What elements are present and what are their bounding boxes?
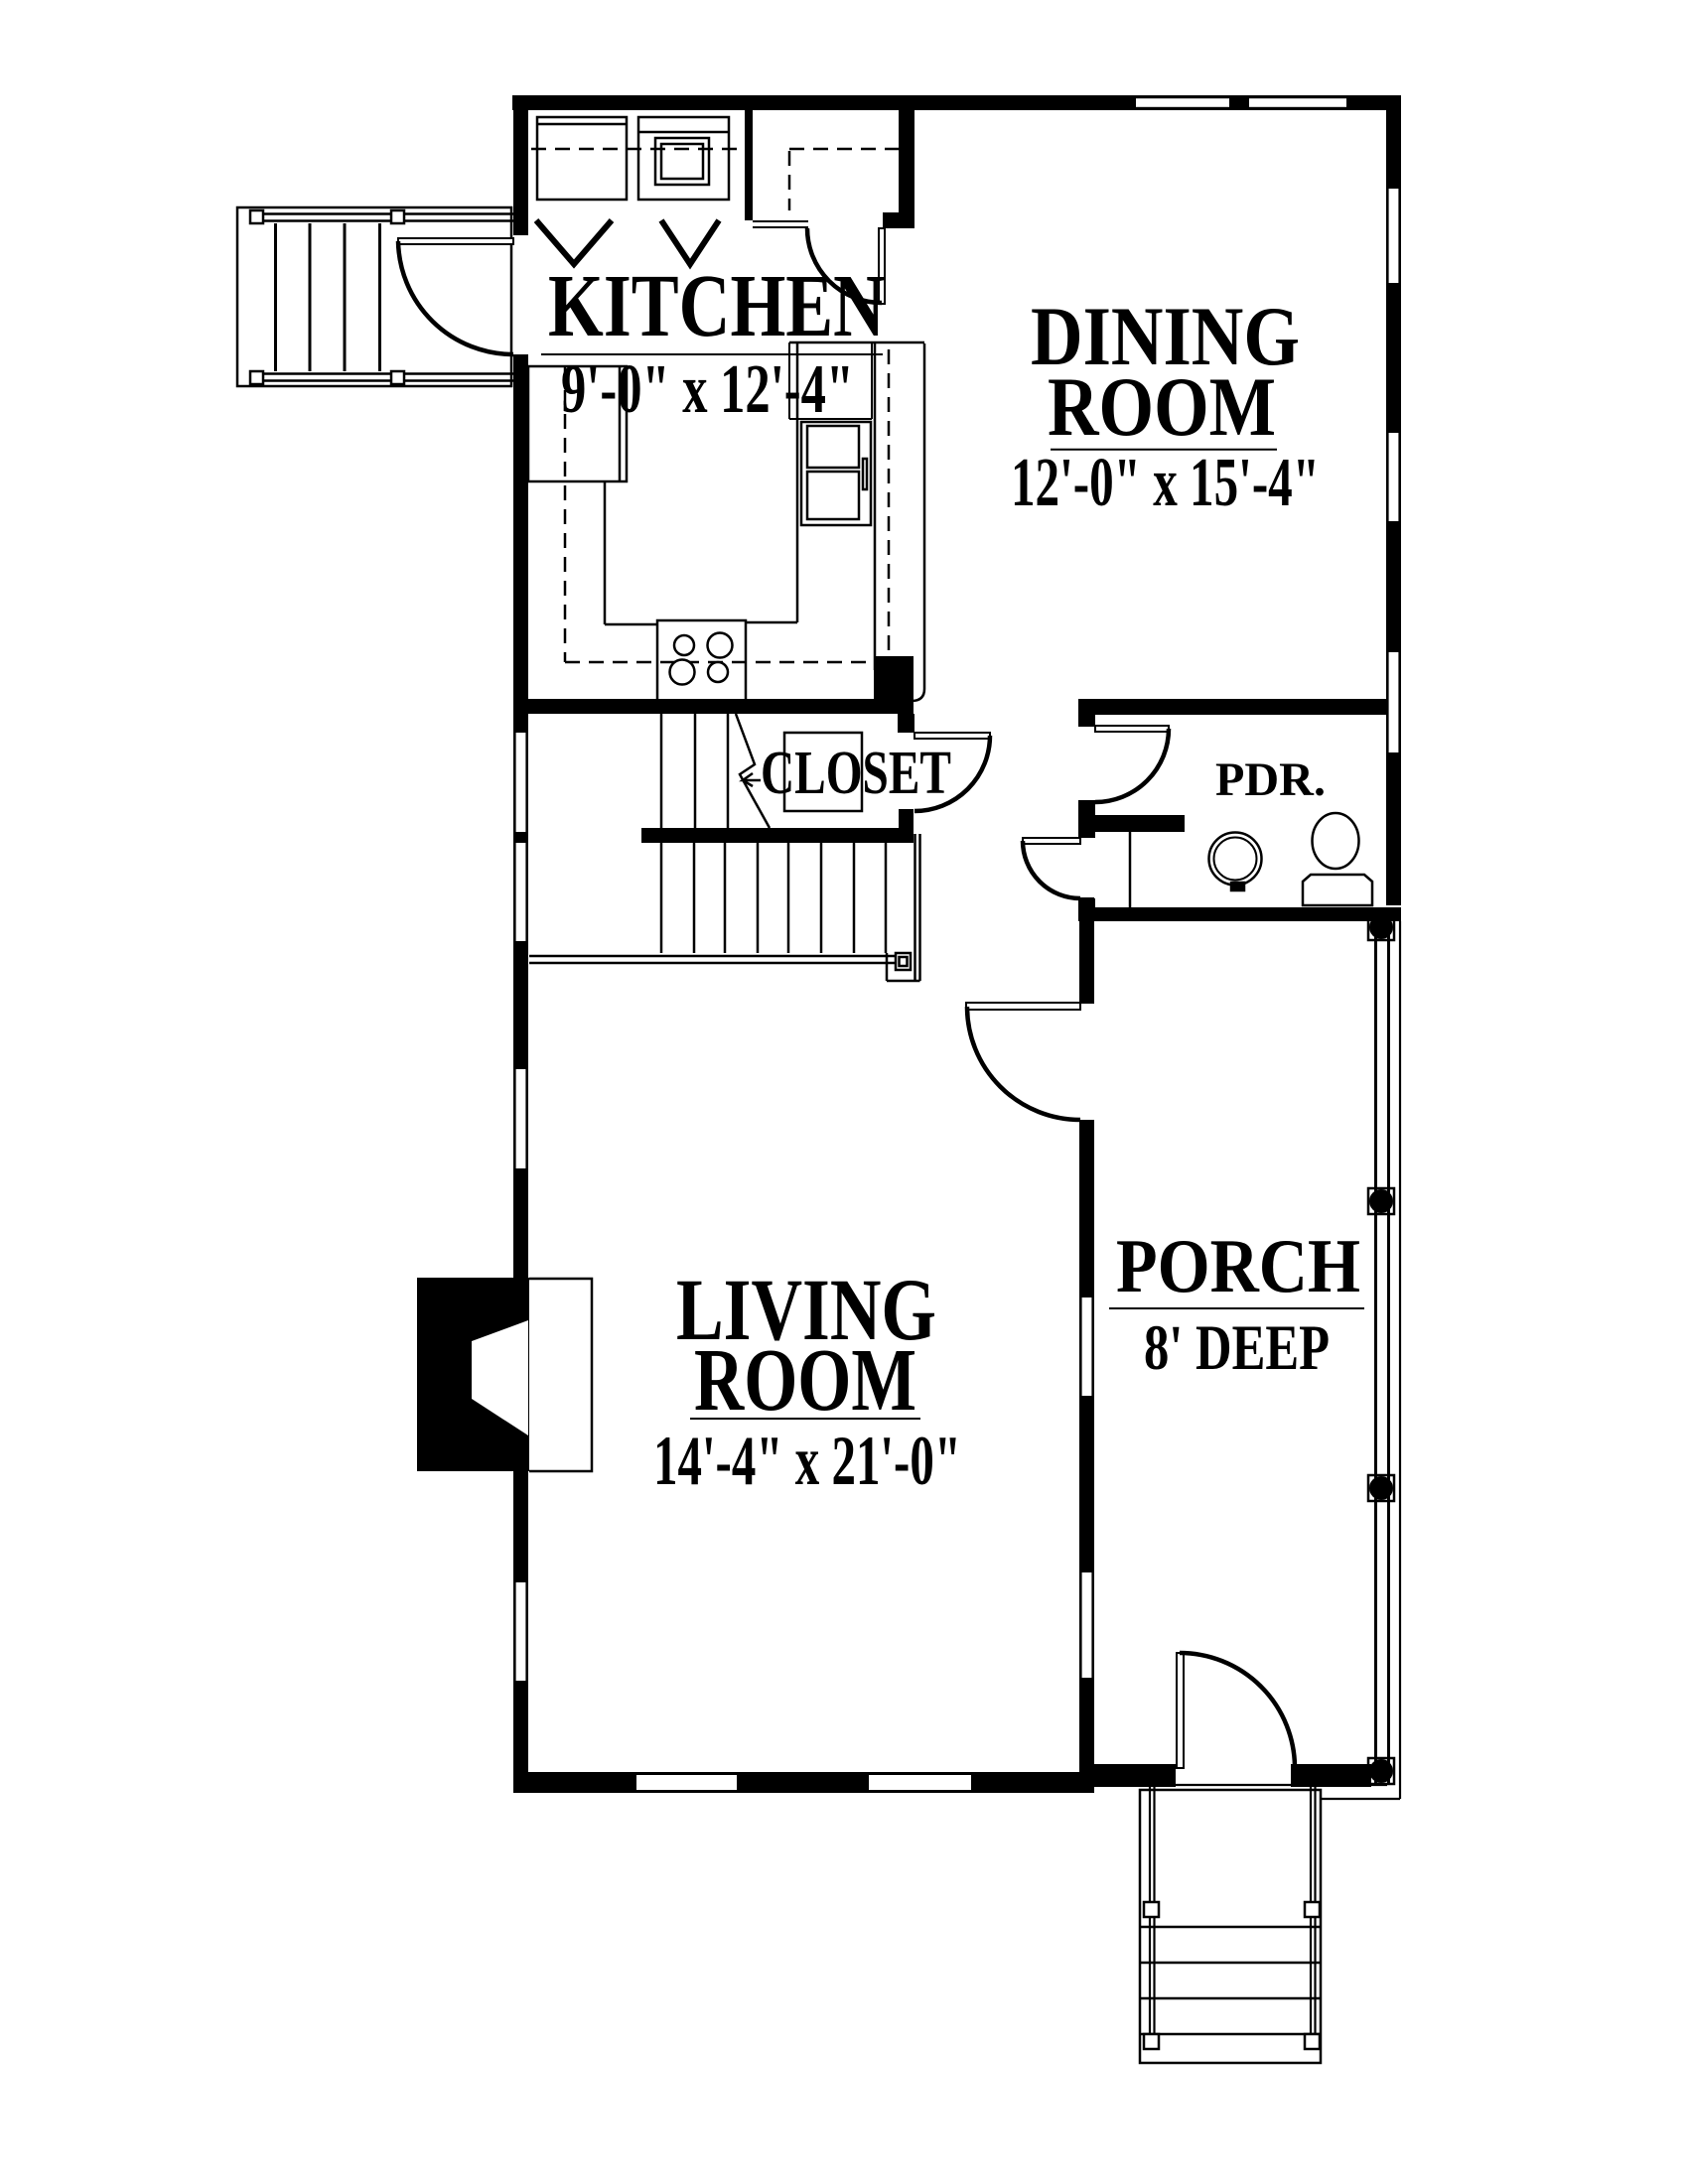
svg-text:8' DEEP: 8' DEEP [1144,1312,1330,1384]
svg-text:9'-0" x 12'-4": 9'-0" x 12'-4" [561,351,854,428]
svg-text:ROOM: ROOM [694,1331,916,1430]
svg-text:12'-0" x 15'-4": 12'-0" x 15'-4" [1011,445,1320,521]
svg-text:CLOSET: CLOSET [761,740,951,807]
svg-text:14'-4" x 21'-0": 14'-4" x 21'-0" [653,1423,961,1500]
svg-text:PDR.: PDR. [1215,753,1326,806]
svg-text:PORCH: PORCH [1116,1223,1360,1308]
svg-text:KITCHEN: KITCHEN [548,257,885,355]
svg-text:ROOM: ROOM [1048,360,1276,454]
